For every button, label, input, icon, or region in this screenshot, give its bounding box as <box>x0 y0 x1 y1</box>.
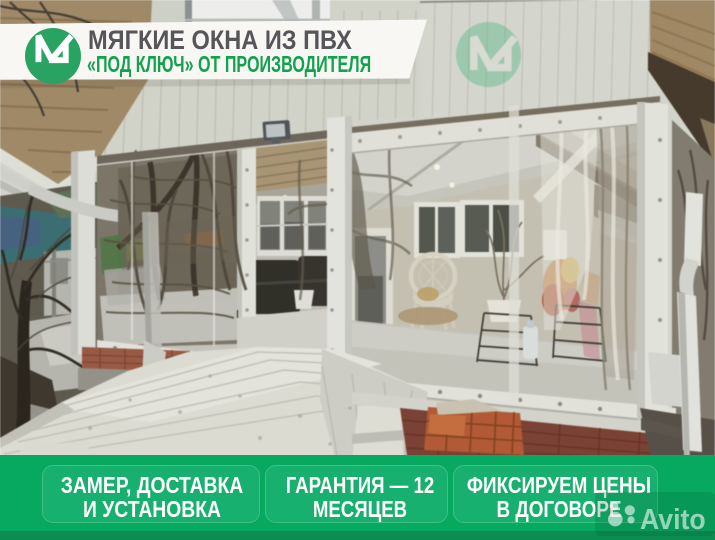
svg-text:Avito: Avito <box>640 503 706 535</box>
